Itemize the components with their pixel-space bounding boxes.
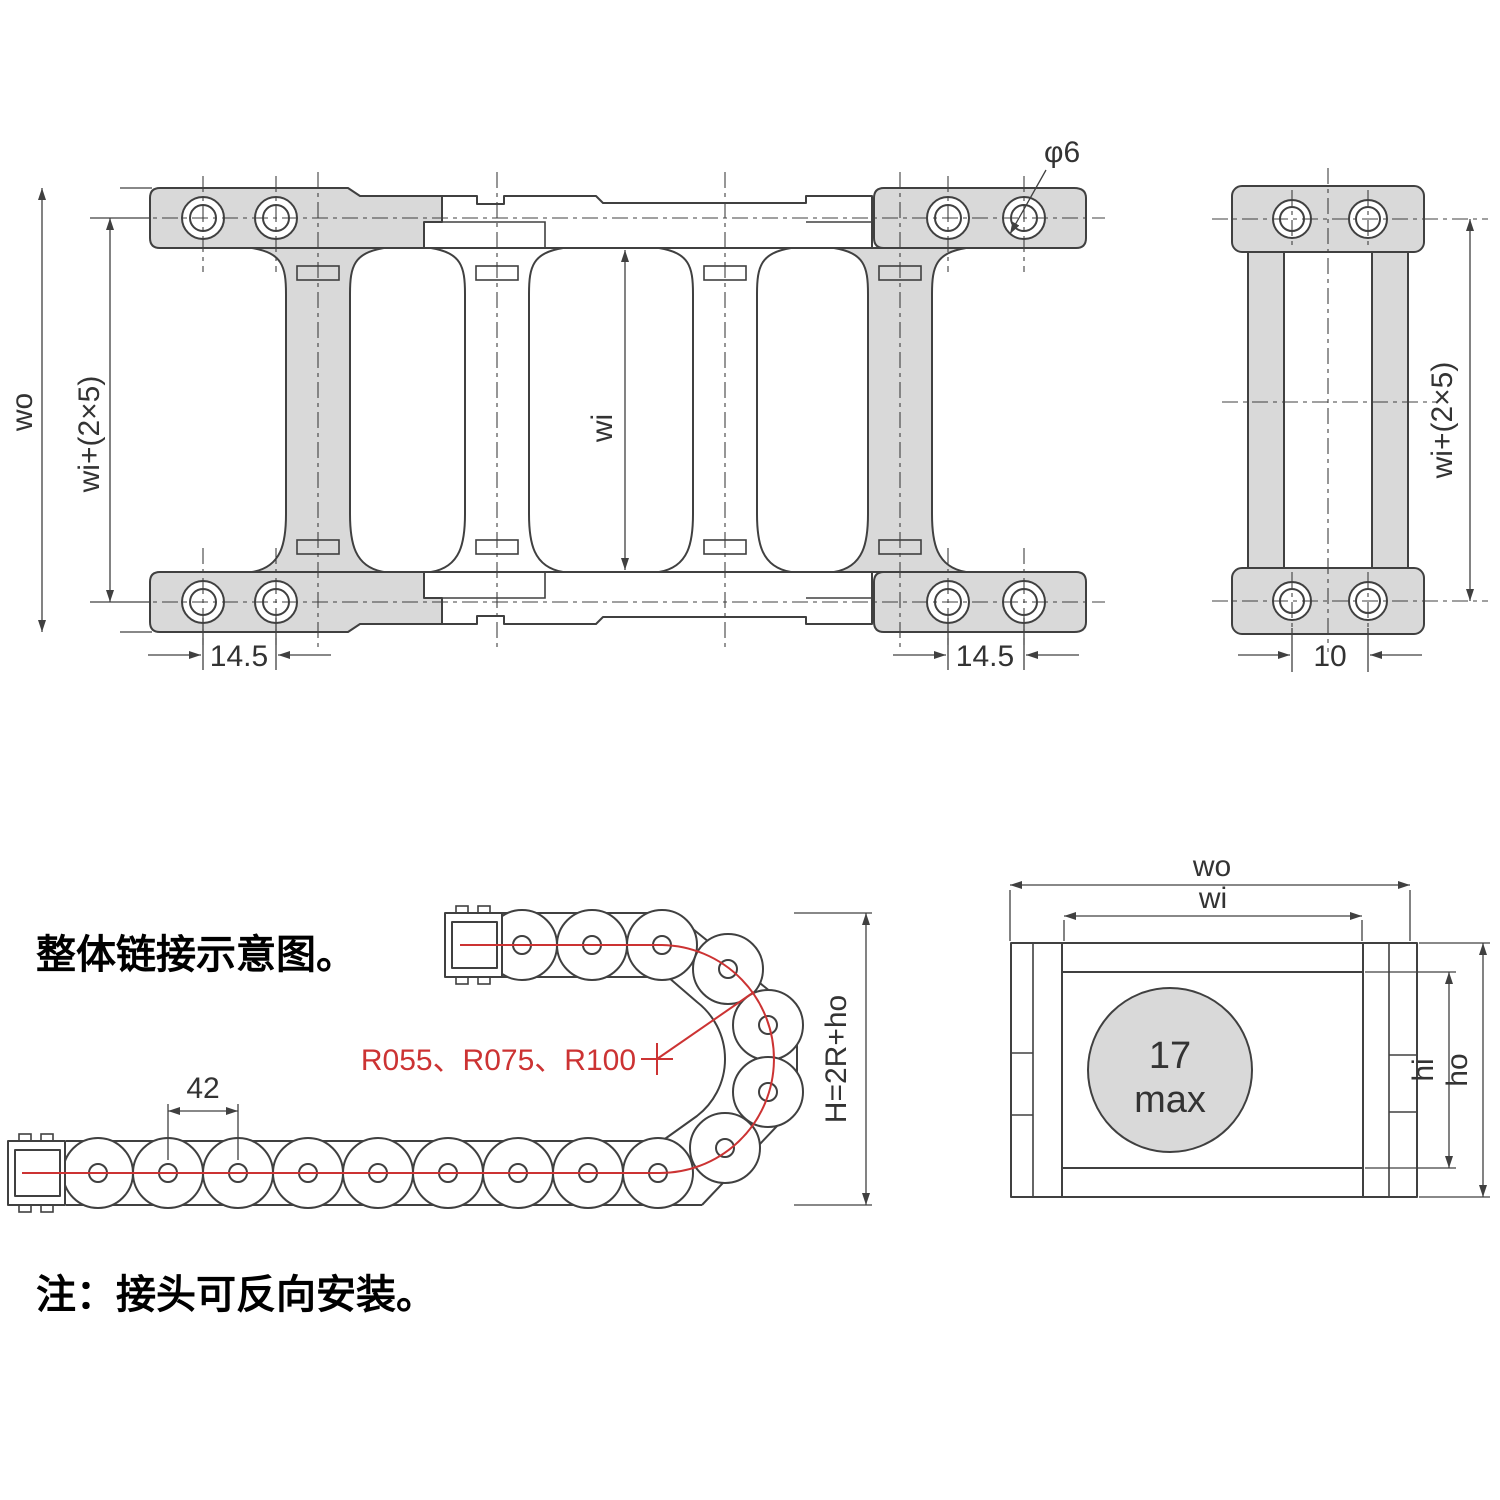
dim-inner-width-label: wi bbox=[586, 414, 619, 443]
crossbar-bottom bbox=[1062, 1168, 1363, 1197]
dim-hole-pitch-right-label: 14.5 bbox=[956, 640, 1014, 673]
bend-radii-label: R055、R075、R100 bbox=[361, 1044, 636, 1077]
dim-inner-height-label: hi bbox=[1407, 1058, 1440, 1081]
cable-diameter-value: 17 bbox=[1149, 1035, 1191, 1077]
footnote: 注：接头可反向安装。 bbox=[36, 1272, 436, 1317]
crossbar-top bbox=[1062, 943, 1363, 972]
diagram-caption: 整体链接示意图。 bbox=[36, 932, 356, 977]
dim-outer-width-label: wo bbox=[1192, 850, 1231, 883]
dim-bolt-span-label: wi+(2×5) bbox=[73, 376, 106, 494]
dim-inner-width-label: wi bbox=[1198, 882, 1227, 915]
dim-outer-height-label: ho bbox=[1441, 1053, 1474, 1086]
dim-bolt-span-label: wi+(2×5) bbox=[1426, 362, 1459, 480]
dim-hole-pitch-label: 10 bbox=[1313, 640, 1346, 673]
technical-drawing: wo wi+(2×5) wi φ6 14.5 14.5 bbox=[0, 0, 1500, 1500]
dim-hole-diameter-label: φ6 bbox=[1044, 136, 1080, 169]
side-bar-right bbox=[1372, 250, 1408, 570]
dim-hole-pitch-left-label: 14.5 bbox=[210, 640, 268, 673]
drawing-sheet: wo wi+(2×5) wi φ6 14.5 14.5 bbox=[0, 0, 1500, 1500]
dim-height-formula-label: H=2R+ho bbox=[820, 995, 853, 1123]
cable-diameter-qualifier: max bbox=[1134, 1079, 1206, 1121]
dim-outer-width-label: wo bbox=[6, 393, 39, 432]
dim-link-pitch-label: 42 bbox=[186, 1072, 219, 1105]
rail-left bbox=[1011, 943, 1062, 1197]
side-bar-left bbox=[1248, 250, 1284, 570]
